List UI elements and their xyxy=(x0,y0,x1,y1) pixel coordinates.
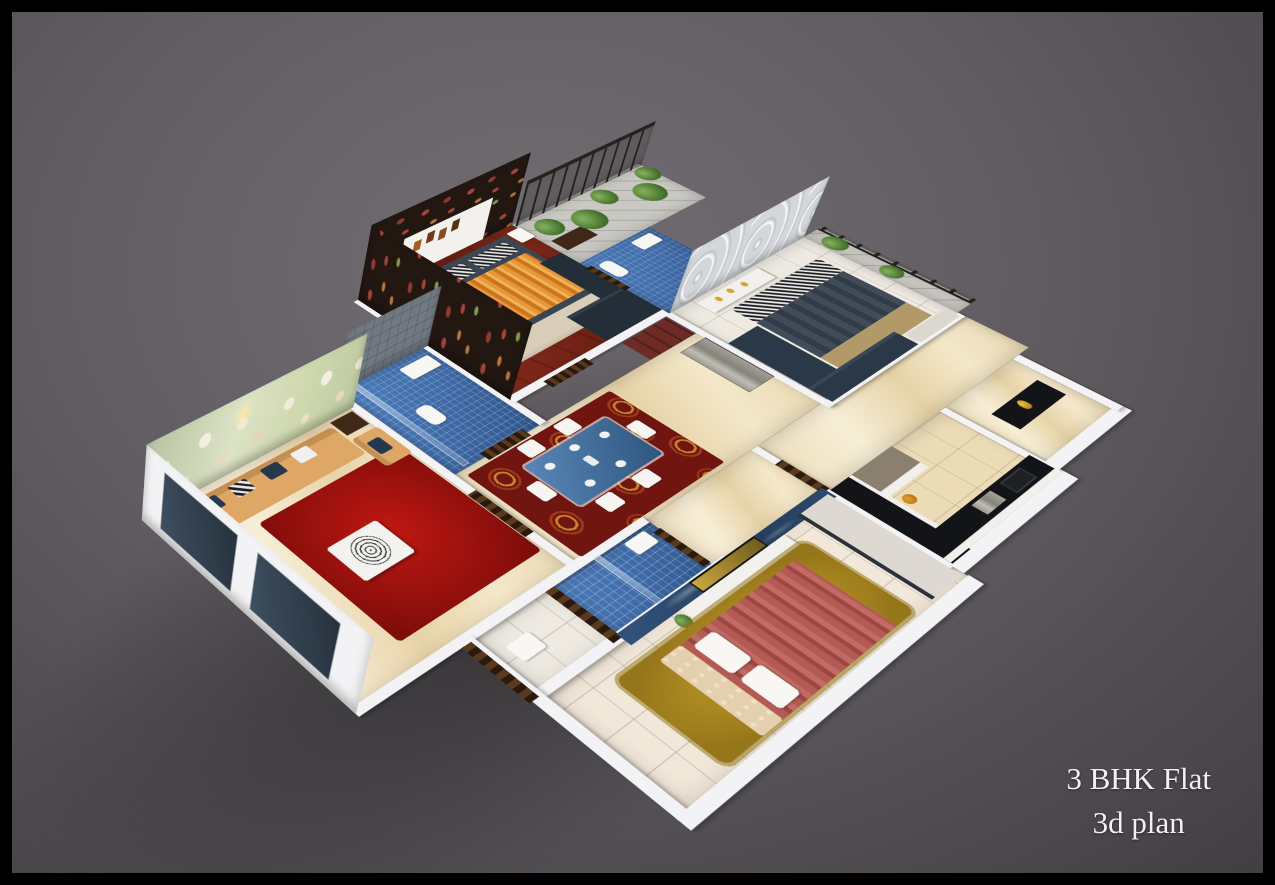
caption-line-1: 3 BHK Flat xyxy=(1066,757,1211,801)
framed-render: 3 BHK Flat 3d plan xyxy=(0,0,1275,885)
outer-wall-south-foyer xyxy=(1044,404,1132,471)
mural-lamp-glow xyxy=(231,397,257,430)
caption-line-2: 3d plan xyxy=(1066,801,1211,845)
caption: 3 BHK Flat 3d plan xyxy=(1066,757,1211,845)
backdrop: 3 BHK Flat 3d plan xyxy=(12,12,1263,873)
